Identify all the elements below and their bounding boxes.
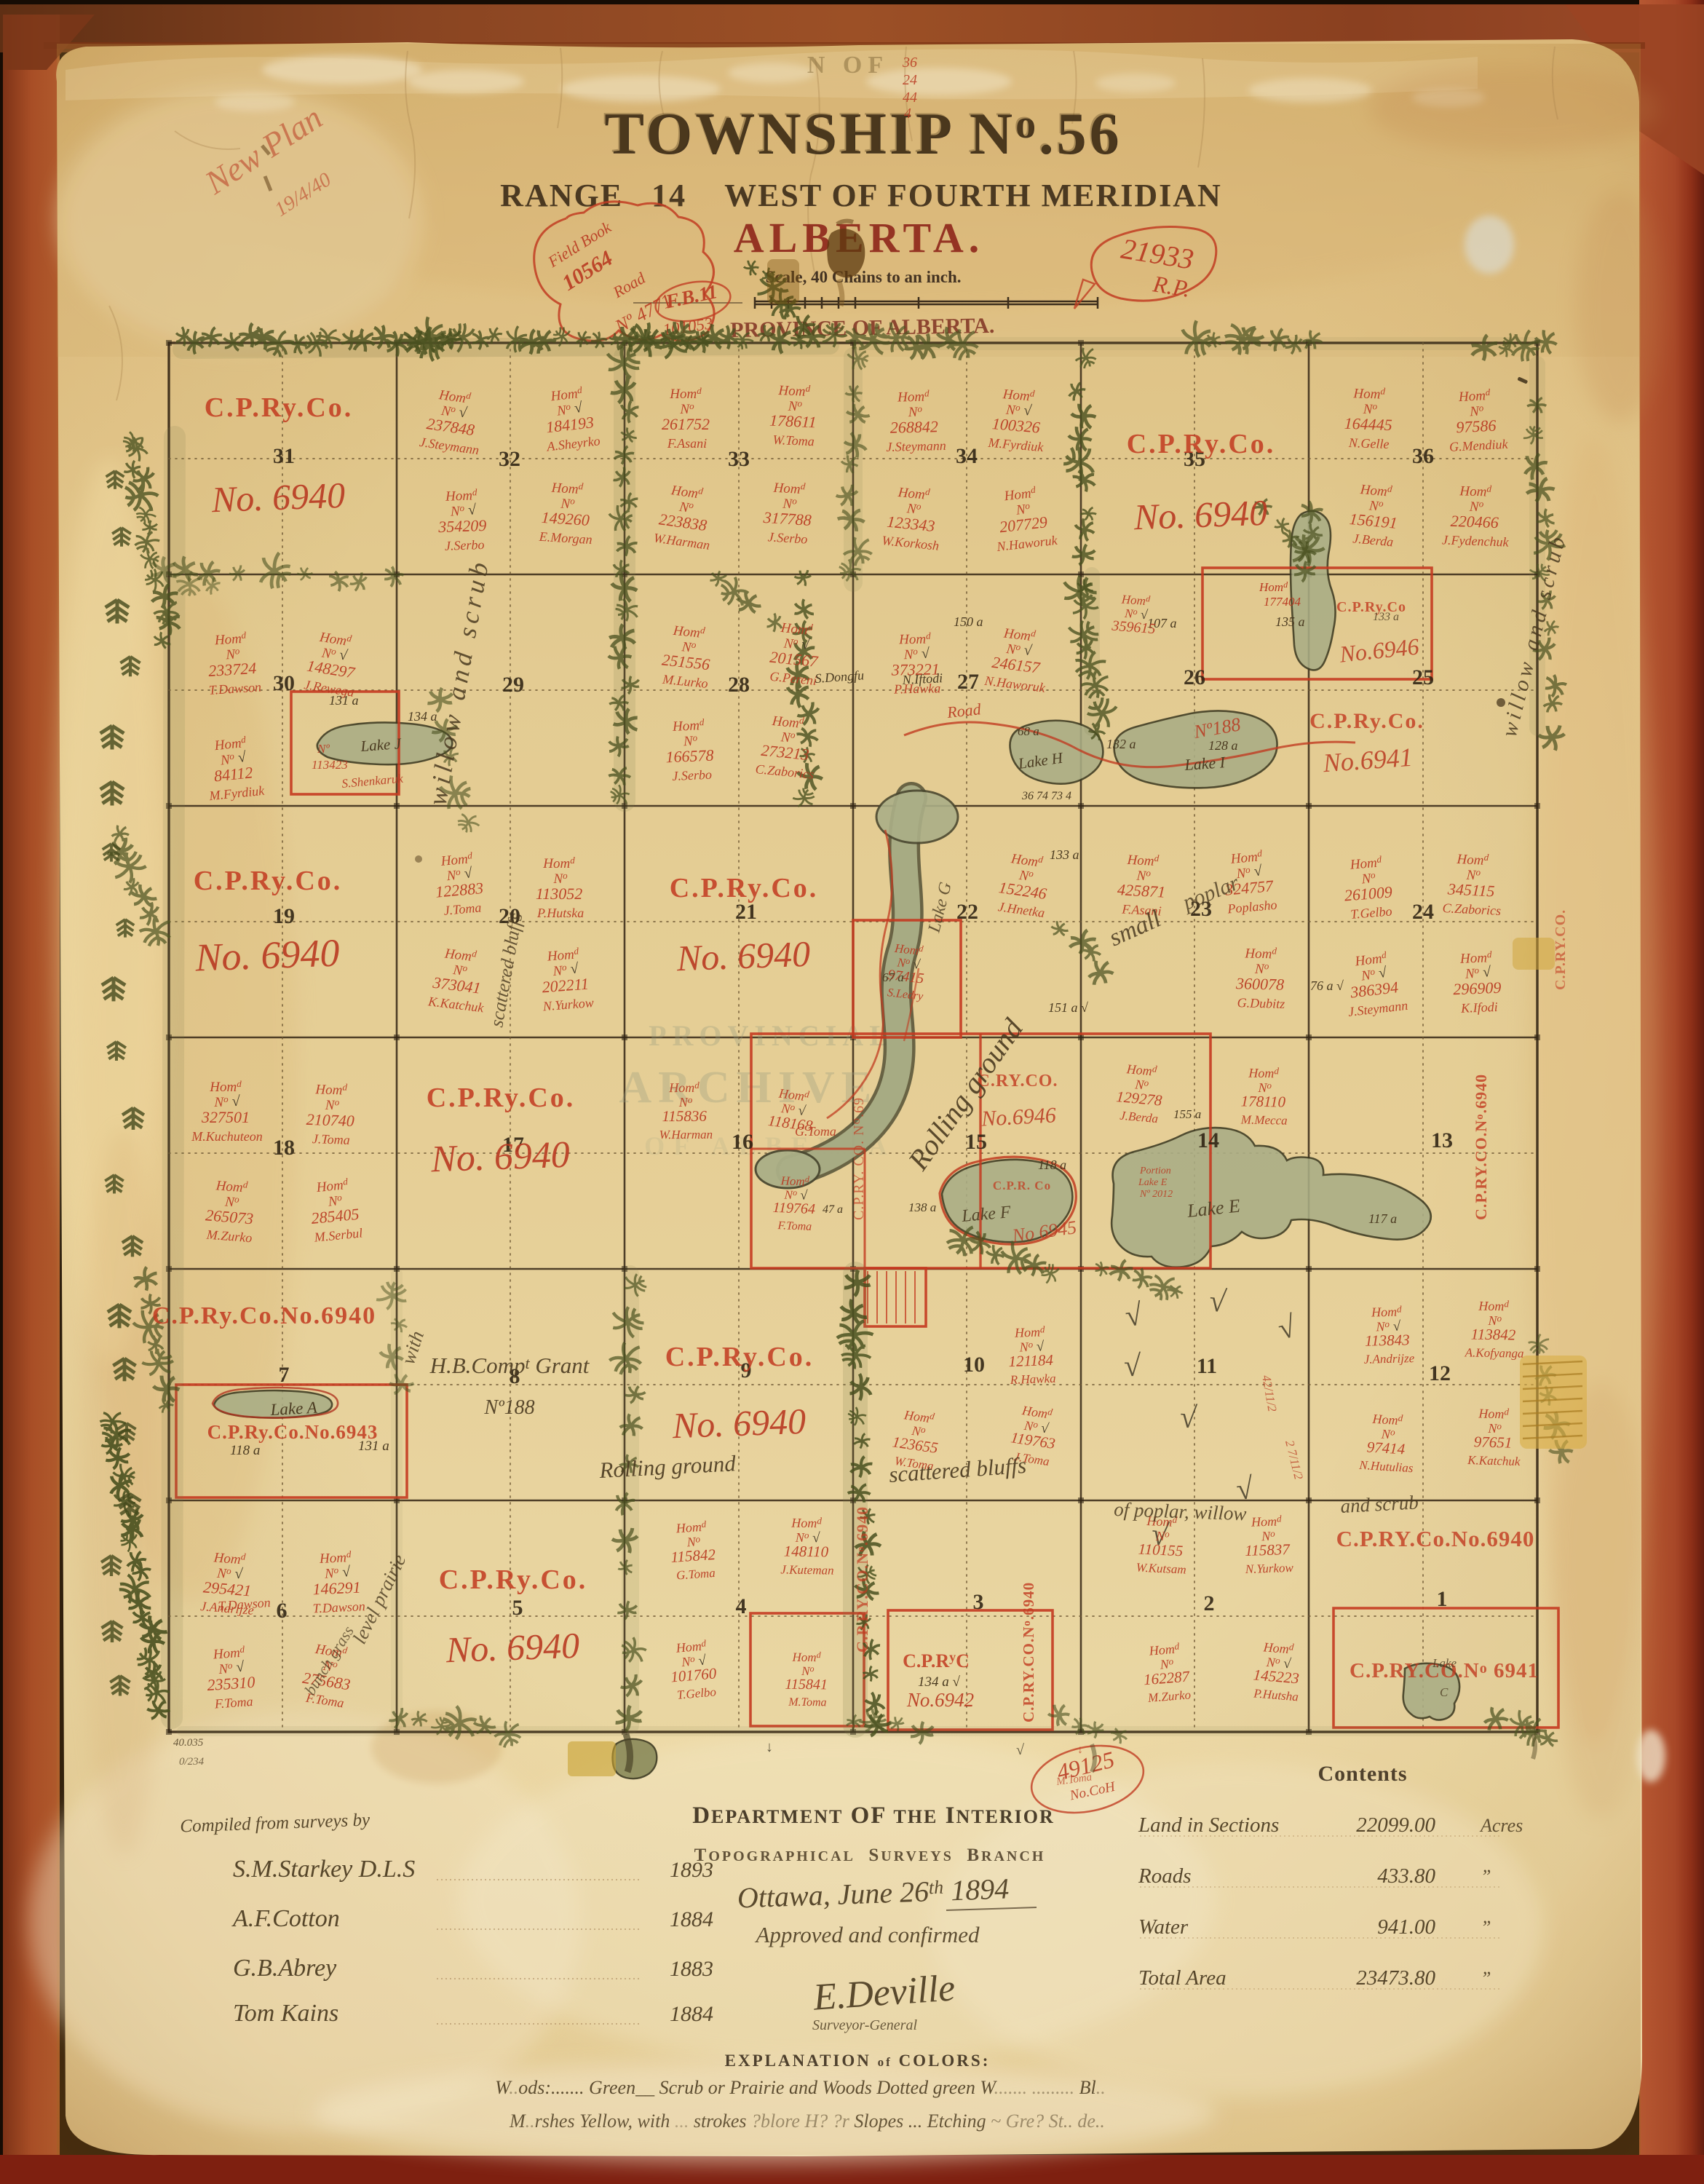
- svg-text:265073: 265073: [205, 1206, 254, 1227]
- svg-text:36: 36: [902, 55, 917, 71]
- svg-text:131 a: 131 a: [329, 693, 359, 708]
- svg-text:177404: 177404: [1264, 595, 1301, 609]
- svg-text:Lake I: Lake I: [1184, 753, 1227, 774]
- svg-text:47 a: 47 a: [823, 1203, 843, 1216]
- svg-text:Lake J: Lake J: [360, 735, 403, 755]
- svg-text:178110: 178110: [1240, 1092, 1285, 1110]
- svg-text:C.P.RY.CO.No.6940: C.P.RY.CO.No.6940: [1020, 1582, 1037, 1722]
- svg-text:121184: 121184: [1008, 1351, 1054, 1370]
- svg-text:N.Yurkow: N.Yurkow: [1245, 1561, 1294, 1576]
- svg-text:155 a: 155 a: [1173, 1107, 1201, 1121]
- svg-text:No. 6940: No. 6940: [429, 1134, 571, 1181]
- svg-text:W.Toma: W.Toma: [772, 432, 815, 449]
- svg-text:PROVINCIAL: PROVINCIAL: [649, 1019, 895, 1052]
- svg-text:No. 6940: No. 6940: [675, 933, 811, 978]
- svg-text:Contents: Contents: [1317, 1762, 1407, 1786]
- svg-text:151 a √: 151 a √: [1048, 1000, 1088, 1015]
- svg-text:134 a √: 134 a √: [918, 1674, 961, 1690]
- svg-text:360078: 360078: [1235, 974, 1285, 994]
- svg-text:C.P.Ry.Co.No.6940: C.P.Ry.Co.No.6940: [152, 1302, 376, 1329]
- svg-text:F.Toma: F.Toma: [777, 1219, 812, 1233]
- svg-text:C.P.Ry.Co.: C.P.Ry.Co.: [205, 392, 354, 423]
- svg-text:131 a: 131 a: [358, 1439, 389, 1454]
- svg-text:Approved and confirmed: Approved and confirmed: [754, 1922, 980, 1947]
- svg-text:11: 11: [1197, 1354, 1217, 1378]
- svg-text:T.Dawson: T.Dawson: [312, 1599, 365, 1615]
- svg-text:345115: 345115: [1446, 879, 1495, 900]
- svg-text:J.Serbo: J.Serbo: [672, 767, 712, 783]
- svg-text:C.P.RY.CO.: C.P.RY.CO.: [1553, 909, 1569, 990]
- svg-text:J.Kuteman: J.Kuteman: [780, 1562, 834, 1577]
- svg-text:J.Serbo: J.Serbo: [445, 537, 485, 553]
- svg-text:6: 6: [277, 1599, 288, 1623]
- svg-text:A.Kofyanga: A.Kofyanga: [1465, 1345, 1524, 1360]
- svg-text:117 a: 117 a: [1368, 1211, 1397, 1226]
- svg-text:36: 36: [1412, 444, 1434, 468]
- svg-text:166578: 166578: [665, 746, 714, 767]
- svg-text:4: 4: [736, 1594, 747, 1618]
- svg-text:C.Zaborics: C.Zaborics: [1442, 901, 1501, 918]
- svg-text:G.Toma: G.Toma: [795, 1124, 836, 1139]
- svg-text:C.P.Ry.Co.: C.P.Ry.Co.: [194, 866, 343, 896]
- svg-text:5: 5: [512, 1596, 523, 1620]
- svg-text:Lake E: Lake E: [1138, 1177, 1168, 1188]
- svg-text:27: 27: [957, 670, 979, 694]
- svg-text:25: 25: [1412, 665, 1434, 689]
- svg-text:C.P.Ry.Co.: C.P.Ry.Co.: [1127, 429, 1276, 459]
- svg-text:W.Harman: W.Harman: [659, 1128, 713, 1142]
- svg-text:16: 16: [732, 1130, 753, 1154]
- svg-text:13: 13: [1431, 1128, 1453, 1152]
- svg-text:119764: 119764: [772, 1200, 815, 1217]
- svg-text:√: √: [1178, 1401, 1198, 1436]
- svg-text:0/234: 0/234: [179, 1756, 205, 1768]
- svg-text:113423: 113423: [312, 758, 348, 772]
- svg-text:C.P.RY.CO.No.6940: C.P.RY.CO.No.6940: [1472, 1074, 1490, 1220]
- svg-text:M..rshes Yellow, with ... str: M..rshes Yellow, with ... strokes ?blore…: [509, 2110, 1105, 2132]
- svg-text:10: 10: [963, 1353, 985, 1377]
- svg-text:TOPOGRAPHICAL SURVEYS BRANCH: TOPOGRAPHICAL SURVEYS BRANCH: [694, 1845, 1046, 1865]
- svg-text:J.Serbo: J.Serbo: [767, 529, 808, 546]
- svg-text:Land in Sections: Land in Sections: [1138, 1813, 1279, 1837]
- svg-text:268842: 268842: [890, 417, 939, 437]
- svg-text:115841: 115841: [785, 1677, 828, 1693]
- svg-text:97414: 97414: [1366, 1438, 1406, 1457]
- svg-text:1: 1: [1437, 1587, 1448, 1611]
- svg-text:J.Andrijze: J.Andrijze: [1364, 1351, 1415, 1366]
- svg-text:202211: 202211: [542, 974, 590, 996]
- svg-text:32: 32: [499, 447, 520, 471]
- svg-text:15: 15: [965, 1130, 987, 1154]
- svg-text:No. 6940: No. 6940: [194, 931, 340, 980]
- svg-text:Tom Kains: Tom Kains: [233, 2000, 338, 2027]
- svg-text:327501: 327501: [201, 1108, 250, 1126]
- svg-text:P.Hawka: P.Hawka: [893, 681, 941, 696]
- svg-text:235310: 235310: [207, 1673, 256, 1694]
- svg-text:115842: 115842: [670, 1546, 716, 1566]
- svg-text:W.Kutsam: W.Kutsam: [1136, 1560, 1186, 1576]
- svg-text:2: 2: [1204, 1591, 1215, 1615]
- svg-text:H.B.Compt Grant: H.B.Compt Grant: [429, 1353, 590, 1378]
- svg-text:76 a √: 76 a √: [1310, 978, 1344, 993]
- svg-text:G.Dubitz: G.Dubitz: [1237, 995, 1285, 1011]
- svg-text:No. 6940: No. 6940: [210, 475, 346, 520]
- svg-text:M.Mecca: M.Mecca: [1240, 1112, 1288, 1127]
- svg-text:Roads: Roads: [1138, 1864, 1192, 1888]
- svg-text:296909: 296909: [1453, 978, 1502, 999]
- svg-text:G.B.Abrey: G.B.Abrey: [233, 1955, 337, 1982]
- svg-text:Total Area: Total Area: [1138, 1966, 1227, 1990]
- svg-text:18: 18: [273, 1136, 295, 1160]
- svg-text:354209: 354209: [437, 516, 487, 536]
- svg-text:433.80: 433.80: [1377, 1864, 1435, 1888]
- svg-text:7: 7: [279, 1363, 290, 1387]
- svg-text:”: ”: [1481, 1917, 1491, 1938]
- svg-text:210740: 210740: [306, 1110, 354, 1130]
- svg-text:of poplar, willow: of poplar, willow: [1114, 1498, 1247, 1524]
- svg-text:23473.80: 23473.80: [1356, 1966, 1435, 1990]
- svg-text:C: C: [1440, 1685, 1449, 1699]
- svg-text:22: 22: [956, 900, 978, 924]
- svg-text:C.P.RY. CO. No.69: C.P.RY. CO. No.69: [849, 1097, 867, 1220]
- svg-text:34: 34: [956, 444, 978, 468]
- svg-text:C.P.Ry.Co.: C.P.Ry.Co.: [1309, 709, 1424, 733]
- svg-text:233724: 233724: [208, 659, 257, 680]
- svg-text:C.P.RY.Co.No.6940: C.P.RY.Co.No.6940: [1336, 1526, 1535, 1551]
- svg-text:146291: 146291: [312, 1578, 361, 1599]
- svg-text:Surveyor-General: Surveyor-General: [812, 2017, 917, 2033]
- svg-text:24: 24: [903, 72, 917, 88]
- svg-text:No.6942: No.6942: [906, 1689, 974, 1711]
- svg-text:36 74 73 4: 36 74 73 4: [1021, 790, 1071, 802]
- svg-text:373221: 373221: [890, 660, 939, 678]
- svg-text:148110: 148110: [783, 1542, 828, 1560]
- svg-text:29: 29: [502, 673, 524, 697]
- svg-text:Road: Road: [946, 700, 983, 721]
- svg-text:67 a: 67 a: [882, 970, 904, 984]
- svg-text:Lake: Lake: [1432, 1656, 1457, 1670]
- svg-text:118 a: 118 a: [1038, 1158, 1066, 1172]
- svg-text:164445: 164445: [1344, 414, 1392, 434]
- svg-text:and scrub: and scrub: [1340, 1491, 1419, 1517]
- svg-text:24: 24: [1412, 900, 1434, 924]
- svg-text:150 a: 150 a: [954, 614, 983, 629]
- svg-text:97586: 97586: [1456, 416, 1497, 437]
- svg-text:26: 26: [1184, 665, 1205, 689]
- svg-text:W..ods:....... Green__ Scrub o: W..ods:....... Green__ Scrub or Prairie …: [495, 2077, 1106, 2098]
- svg-text:N OF: N OF: [807, 52, 889, 79]
- svg-text:178611: 178611: [769, 411, 817, 432]
- svg-text:C.P.Ry.Co.No.6943: C.P.Ry.Co.No.6943: [207, 1421, 379, 1443]
- svg-text:Nº: Nº: [317, 742, 330, 756]
- svg-text:4: 4: [904, 106, 911, 122]
- svg-text:G.Toma: G.Toma: [675, 1566, 716, 1583]
- svg-text:TOWNSHIP No.56: TOWNSHIP No.56: [603, 99, 1120, 165]
- svg-text:97651: 97651: [1474, 1433, 1513, 1451]
- svg-text:Portion: Portion: [1139, 1166, 1171, 1176]
- svg-text:√: √: [1124, 1350, 1141, 1383]
- svg-text:115836: 115836: [662, 1107, 707, 1125]
- svg-text:68 a: 68 a: [1018, 724, 1039, 738]
- svg-text:1884: 1884: [670, 2002, 713, 2026]
- svg-text:P.Hutska: P.Hutska: [536, 906, 584, 920]
- svg-text:C.P.RyC: C.P.RyC: [903, 1650, 970, 1671]
- svg-text:K.Katchuk: K.Katchuk: [1467, 1453, 1521, 1468]
- svg-text:C.P.Ry.Co.: C.P.Ry.Co.: [670, 873, 819, 903]
- svg-text:Acres: Acres: [1479, 1815, 1523, 1836]
- svg-text:110155: 110155: [1138, 1540, 1184, 1560]
- svg-text:261752: 261752: [662, 415, 710, 433]
- svg-text:Lake A: Lake A: [269, 1398, 318, 1419]
- svg-text:R.Hawka: R.Hawka: [1009, 1372, 1055, 1387]
- svg-text:DEPARTMENT OF THE INTERIOR: DEPARTMENT OF THE INTERIOR: [692, 1803, 1055, 1829]
- svg-text:12: 12: [1429, 1361, 1451, 1385]
- svg-text:115837: 115837: [1245, 1540, 1291, 1559]
- svg-text:”: ”: [1481, 1968, 1491, 1989]
- svg-text:√: √: [1016, 1742, 1024, 1758]
- svg-text:J.Steymann: J.Steymann: [886, 438, 946, 454]
- svg-text:C.P.Ry.Co.: C.P.Ry.Co.: [427, 1083, 576, 1113]
- svg-text:K.Ifodi: K.Ifodi: [1460, 1000, 1498, 1016]
- svg-text:C.P.RY.CO.No.6940: C.P.RY.CO.No.6940: [853, 1506, 871, 1653]
- svg-text:Nº 2012: Nº 2012: [1139, 1189, 1173, 1200]
- svg-text:162287: 162287: [1143, 1667, 1191, 1688]
- svg-text:261009: 261009: [1344, 882, 1393, 904]
- svg-text:132 a: 132 a: [1106, 737, 1136, 751]
- svg-text:C.P.R. Co: C.P.R. Co: [993, 1179, 1051, 1192]
- svg-text:14: 14: [1197, 1128, 1219, 1152]
- svg-text:30: 30: [273, 671, 295, 695]
- svg-text:149260: 149260: [541, 508, 590, 529]
- svg-text:317788: 317788: [762, 508, 812, 529]
- svg-text:113843: 113843: [1365, 1331, 1410, 1349]
- svg-text:1884: 1884: [670, 1907, 713, 1931]
- svg-text:No. 6940: No. 6940: [1133, 492, 1268, 537]
- svg-text:A.F.Cotton: A.F.Cotton: [231, 1905, 340, 1932]
- svg-text:1883: 1883: [670, 1957, 713, 1981]
- svg-text:22099.00: 22099.00: [1356, 1813, 1435, 1837]
- svg-text:31: 31: [273, 444, 295, 468]
- svg-text:C.P.Ry.Co.: C.P.Ry.Co.: [439, 1564, 588, 1595]
- svg-text:40.035: 40.035: [173, 1737, 204, 1749]
- svg-text:J.Fydenchuk: J.Fydenchuk: [1442, 532, 1510, 549]
- svg-text:220466: 220466: [1450, 512, 1499, 531]
- svg-text:133 a: 133 a: [1050, 847, 1079, 862]
- svg-text:28: 28: [728, 673, 750, 697]
- svg-text:44: 44: [903, 90, 917, 106]
- svg-text:No. 6940: No. 6940: [671, 1401, 807, 1446]
- svg-text:F.Asani: F.Asani: [667, 436, 707, 451]
- svg-text:No.6946: No.6946: [980, 1103, 1056, 1131]
- svg-text:133 a: 133 a: [1373, 611, 1399, 623]
- svg-text:425871: 425871: [1117, 880, 1165, 901]
- svg-text:19: 19: [273, 904, 295, 928]
- svg-text:134 a: 134 a: [408, 709, 437, 724]
- svg-text:↓: ↓: [766, 1739, 773, 1755]
- svg-text:113842: 113842: [1471, 1326, 1516, 1344]
- svg-text:C.P.Ry.Co.: C.P.Ry.Co.: [665, 1342, 815, 1372]
- svg-text:F.Toma: F.Toma: [213, 1694, 253, 1712]
- svg-text:↓: ↓: [1077, 1744, 1083, 1756]
- svg-text:113052: 113052: [536, 885, 582, 903]
- svg-text:No. 6940: No. 6940: [445, 1625, 580, 1670]
- svg-text:M.Toma: M.Toma: [788, 1696, 826, 1709]
- svg-text:S.M.Starkey D.L.S: S.M.Starkey D.L.S: [233, 1856, 415, 1883]
- svg-text:Water: Water: [1138, 1915, 1189, 1939]
- svg-text:G.Mendiuk: G.Mendiuk: [1449, 437, 1509, 454]
- svg-text:J.Toma: J.Toma: [312, 1131, 351, 1147]
- svg-text:128 a: 128 a: [1208, 738, 1238, 753]
- svg-text:Nº188: Nº188: [483, 1396, 534, 1419]
- svg-text:3: 3: [973, 1590, 984, 1614]
- svg-text:138 a: 138 a: [908, 1200, 936, 1214]
- svg-text:EXPLANATION of COLORS:: EXPLANATION of COLORS:: [725, 2052, 991, 2070]
- svg-text:941.00: 941.00: [1377, 1915, 1435, 1939]
- svg-text:RANGE 14 WEST OF FOURTH M: RANGE 14 WEST OF FOURTH MERIDIAN: [500, 178, 1222, 213]
- svg-text:135 a: 135 a: [1275, 614, 1305, 629]
- svg-text:N.Gelle: N.Gelle: [1348, 435, 1390, 451]
- svg-text:M.Kuchuteon: M.Kuchuteon: [191, 1129, 262, 1144]
- svg-text:118 a: 118 a: [230, 1443, 260, 1458]
- svg-text:”: ”: [1481, 1866, 1491, 1887]
- svg-text:33: 33: [728, 447, 750, 471]
